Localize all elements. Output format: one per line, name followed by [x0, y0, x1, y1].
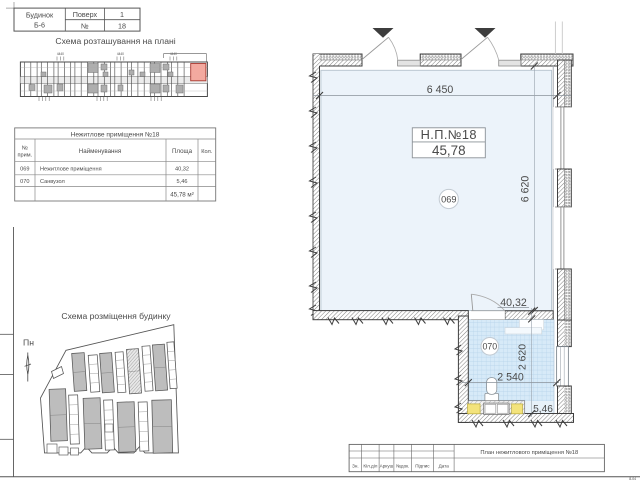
svg-text:№: № — [22, 146, 28, 152]
svg-text:4440: 4440 — [117, 52, 124, 56]
svg-text:Будинок: Будинок — [26, 11, 54, 20]
svg-text:Схема розміщення будинку: Схема розміщення будинку — [61, 311, 171, 321]
svg-text:Санвузол: Санвузол — [40, 179, 65, 185]
svg-text:45,78 м²: 45,78 м² — [170, 192, 194, 199]
svg-text:№: № — [81, 22, 89, 31]
svg-text:Найменування: Найменування — [79, 148, 121, 155]
svg-text:Дата: Дата — [439, 464, 450, 469]
svg-text:План нежитлового приміщення №1: План нежитлового приміщення №18 — [480, 450, 578, 456]
svg-text:069: 069 — [441, 194, 456, 204]
svg-text:45,78: 45,78 — [432, 143, 466, 158]
svg-text:2 620: 2 620 — [518, 344, 529, 370]
svg-text:Поверх: Поверх — [73, 10, 98, 19]
svg-text:Аркуш: Аркуш — [380, 464, 394, 469]
svg-text:Нежитлове приміщення №18: Нежитлове приміщення №18 — [71, 130, 160, 138]
svg-text:1: 1 — [120, 10, 124, 19]
svg-text:Нежитлове приміщення: Нежитлове приміщення — [40, 167, 102, 173]
svg-text:Н.П.№18: Н.П.№18 — [421, 127, 477, 142]
svg-text:прим.: прим. — [17, 153, 32, 159]
svg-text:5,46: 5,46 — [533, 404, 553, 415]
svg-text:4440: 4440 — [57, 52, 64, 56]
svg-text:Схема розташування на плані: Схема розташування на плані — [55, 36, 175, 46]
svg-text:40,32: 40,32 — [175, 167, 189, 173]
svg-text:Зн.: Зн. — [352, 464, 359, 469]
svg-text:6 450: 6 450 — [427, 84, 454, 96]
svg-text:Площа: Площа — [172, 148, 193, 155]
svg-text:6 620: 6 620 — [520, 176, 532, 203]
svg-text:4440: 4440 — [170, 52, 177, 56]
svg-text:2 540: 2 540 — [497, 371, 524, 383]
svg-text:Підпис: Підпис — [415, 464, 430, 469]
svg-text:18: 18 — [118, 22, 126, 31]
svg-text:Кіл.діл: Кіл.діл — [363, 464, 377, 469]
svg-text:№док.: №док. — [396, 464, 409, 469]
svg-text:5,46: 5,46 — [177, 179, 188, 185]
svg-text:069: 069 — [20, 167, 29, 173]
svg-text:070: 070 — [20, 179, 29, 185]
svg-text:Б-6: Б-6 — [34, 21, 45, 30]
svg-text:Пн: Пн — [23, 338, 34, 348]
svg-text:Кол.: Кол. — [201, 149, 213, 155]
svg-text:070: 070 — [482, 342, 497, 352]
